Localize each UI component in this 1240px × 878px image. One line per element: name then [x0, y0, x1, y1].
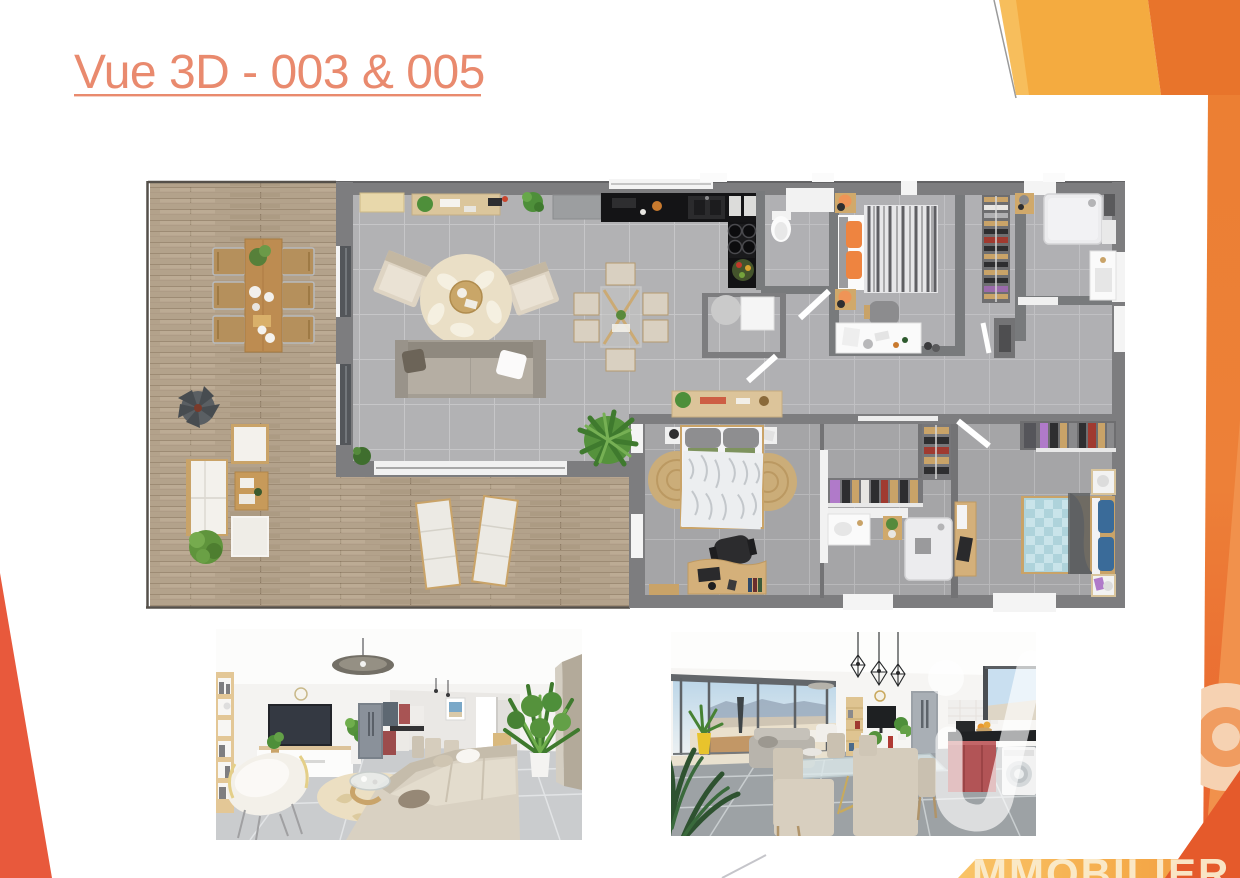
svg-text:Vue 3D - 003 & 005: Vue 3D - 003 & 005: [74, 46, 485, 99]
svg-text:MMOBILIER: MMOBILIER: [972, 850, 1230, 878]
